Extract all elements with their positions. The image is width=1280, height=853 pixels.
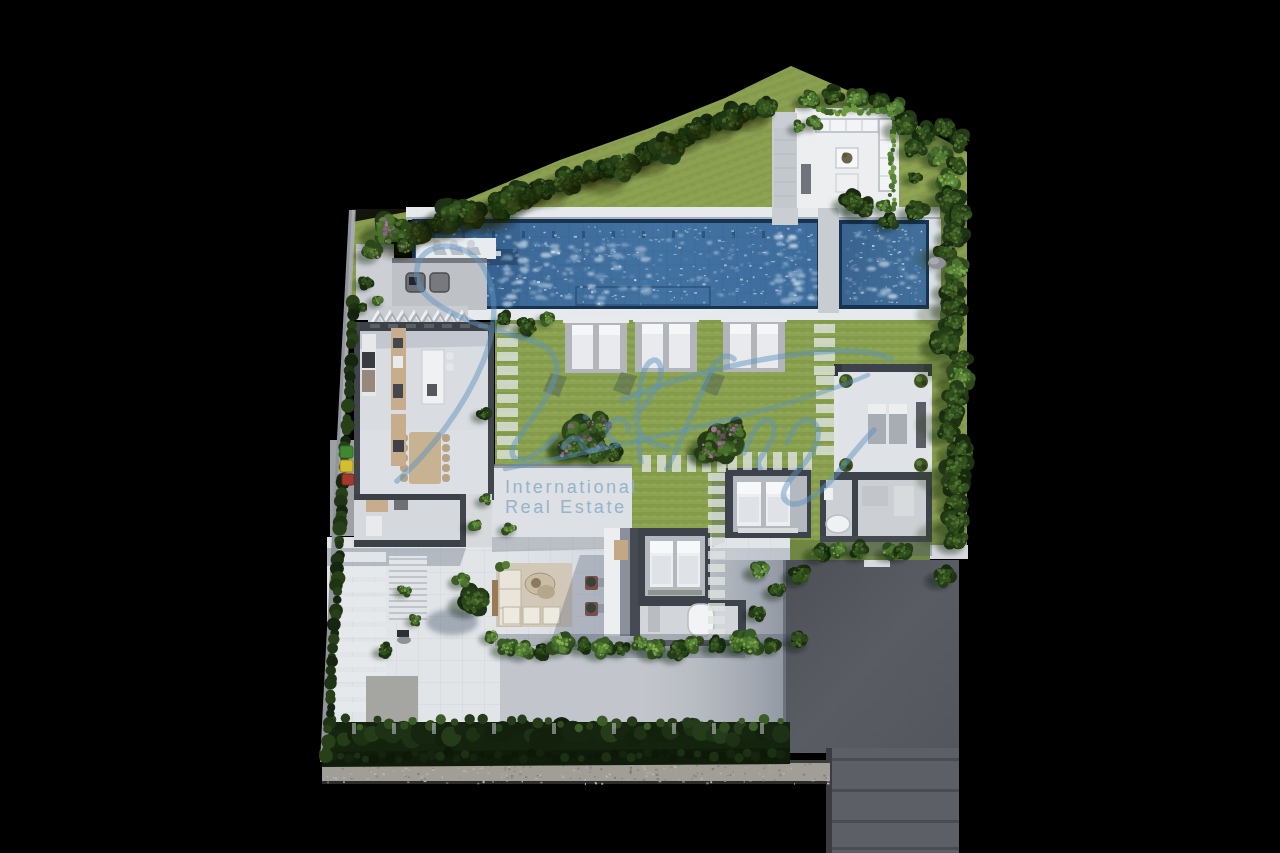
svg-text:Real Estate: Real Estate — [505, 497, 627, 517]
svg-text:International: International — [505, 477, 638, 497]
